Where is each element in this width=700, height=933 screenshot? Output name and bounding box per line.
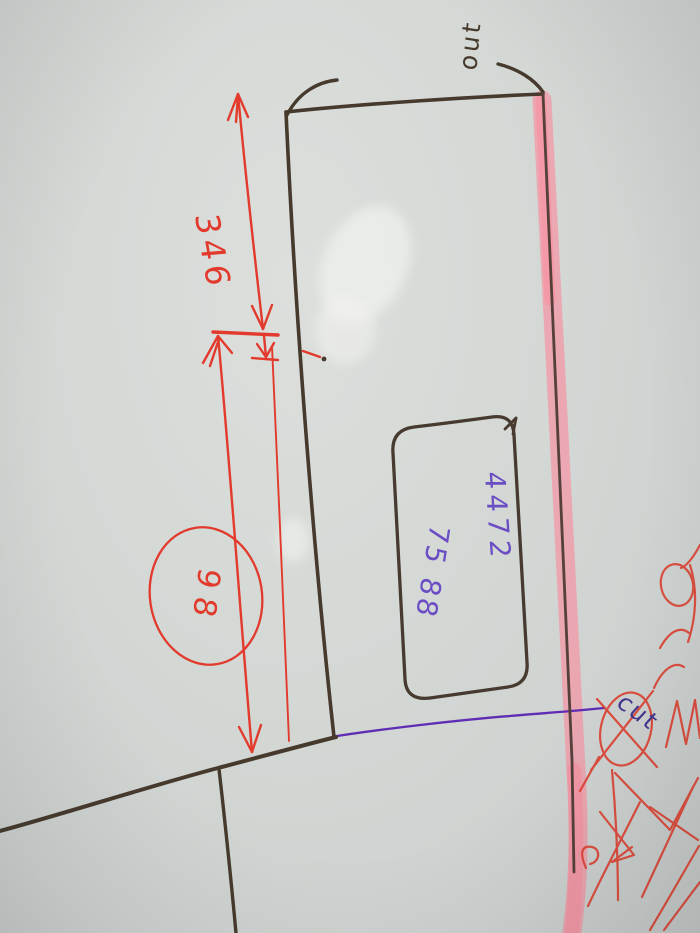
dim-b-shaft (218, 336, 252, 752)
bench-vertical-edge (219, 769, 236, 933)
cutout-note-line1: 4472 (480, 471, 514, 562)
whiteout-smudges (277, 191, 429, 562)
panel-top-edge (286, 94, 543, 112)
stray-ink-dot (322, 357, 327, 362)
dim-346-shaft (238, 94, 263, 329)
sketch-photo: out 346 98 4472 75 88 cut (0, 0, 700, 933)
circle-value-label: 98 (186, 566, 224, 629)
dimension-lines (140, 94, 320, 752)
out-label: out (455, 18, 484, 72)
panel-flap-right (498, 64, 543, 92)
dim-datum-bar-2 (252, 358, 278, 360)
dim-datum-bar-1 (213, 332, 278, 335)
sketch-drawing (0, 0, 700, 933)
bench-front-edge (0, 737, 336, 831)
dim-edge-tick (303, 351, 320, 357)
red-scribbles (580, 545, 700, 930)
panel-left-edge (286, 112, 334, 737)
cut-line (337, 708, 604, 736)
